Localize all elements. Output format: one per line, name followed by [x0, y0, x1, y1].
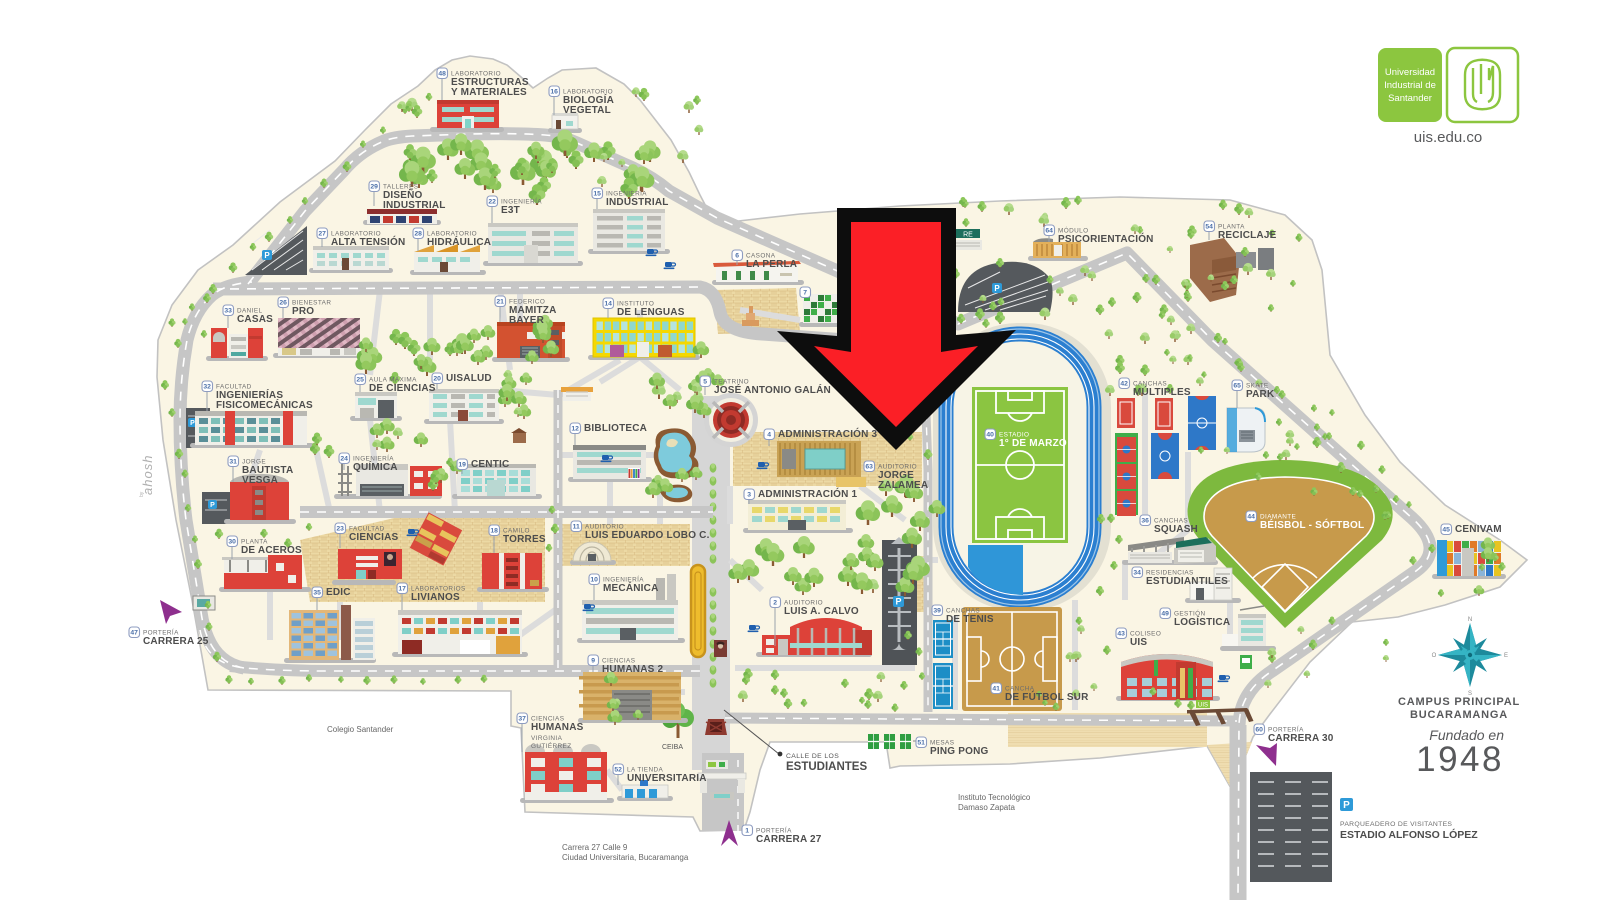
- svg-text:63: 63: [865, 464, 873, 471]
- svg-text:ZALAMEA: ZALAMEA: [878, 480, 928, 491]
- svg-text:BUCARAMANGA: BUCARAMANGA: [1410, 709, 1508, 721]
- svg-text:RE: RE: [963, 232, 973, 239]
- svg-text:LOGÍSTICA: LOGÍSTICA: [1174, 615, 1230, 628]
- svg-text:PSICORIENTACIÓN: PSICORIENTACIÓN: [1058, 232, 1154, 245]
- svg-text:CARRERA 25: CARRERA 25: [143, 636, 209, 647]
- svg-text:40: 40: [986, 432, 994, 439]
- svg-text:45: 45: [1442, 527, 1450, 534]
- svg-text:INDUSTRIAL: INDUSTRIAL: [606, 197, 669, 208]
- svg-text:54: 54: [1205, 224, 1213, 231]
- svg-text:E: E: [1504, 653, 1508, 659]
- svg-text:DE FÚTBOL SUR: DE FÚTBOL SUR: [1005, 690, 1089, 703]
- svg-text:VIRGINIA: VIRGINIA: [531, 735, 563, 742]
- svg-text:CARRERA 30: CARRERA 30: [1268, 733, 1334, 744]
- svg-text:32: 32: [203, 384, 211, 391]
- svg-text:Universidad: Universidad: [1385, 67, 1435, 78]
- svg-text:44: 44: [1247, 514, 1255, 521]
- svg-text:PARQUEADERO DE VISITANTES: PARQUEADERO DE VISITANTES: [1340, 821, 1452, 828]
- svg-text:10: 10: [590, 577, 598, 584]
- svg-text:Santander: Santander: [1388, 93, 1432, 104]
- svg-text:UISALUD: UISALUD: [446, 373, 492, 384]
- svg-text:25: 25: [356, 377, 364, 384]
- svg-text:ahosh: ahosh: [140, 455, 155, 495]
- svg-text:2: 2: [773, 600, 777, 607]
- svg-text:64: 64: [1045, 228, 1053, 235]
- svg-text:CARRERA 27: CARRERA 27: [756, 834, 822, 845]
- svg-text:16: 16: [550, 89, 558, 96]
- svg-text:E3T: E3T: [501, 205, 520, 216]
- svg-text:DE LENGUAS: DE LENGUAS: [617, 307, 685, 318]
- svg-text:CENTIC: CENTIC: [471, 459, 509, 470]
- svg-text:CALLE DE LOS: CALLE DE LOS: [786, 753, 839, 760]
- svg-text:P: P: [190, 420, 195, 427]
- svg-text:36: 36: [1141, 518, 1149, 525]
- svg-text:Carrera 27 Calle 9: Carrera 27 Calle 9: [562, 843, 628, 852]
- svg-text:BÉISBOL - SÓFTBOL: BÉISBOL - SÓFTBOL: [1260, 518, 1364, 531]
- svg-text:TORRES: TORRES: [503, 534, 546, 545]
- svg-text:9: 9: [591, 658, 595, 665]
- svg-text:N: N: [1468, 617, 1472, 623]
- svg-text:DE TENIS: DE TENIS: [946, 614, 994, 625]
- svg-text:Colegio Santander: Colegio Santander: [327, 725, 394, 734]
- svg-text:LA PERLA: LA PERLA: [746, 259, 797, 270]
- svg-text:P: P: [264, 251, 270, 260]
- svg-text:EDIC: EDIC: [326, 587, 351, 598]
- svg-text:27: 27: [318, 231, 326, 238]
- svg-text:P: P: [895, 597, 901, 607]
- svg-text:O: O: [1432, 653, 1437, 659]
- svg-text:RECICLAJE: RECICLAJE: [1218, 230, 1277, 241]
- svg-text:20: 20: [433, 376, 441, 383]
- svg-text:Damaso Zapata: Damaso Zapata: [958, 803, 1015, 812]
- svg-text:UIS: UIS: [1198, 703, 1208, 709]
- svg-text:P: P: [1343, 800, 1350, 811]
- svg-text:uis.edu.co: uis.edu.co: [1414, 129, 1482, 146]
- svg-text:17: 17: [398, 586, 406, 593]
- svg-text:ADMINISTRACIÓN 1: ADMINISTRACIÓN 1: [758, 487, 858, 500]
- svg-text:Ciudad Universitaria, Bucarama: Ciudad Universitaria, Bucaramanga: [562, 853, 689, 862]
- svg-text:ESTUDIANTILES: ESTUDIANTILES: [1146, 576, 1228, 587]
- svg-text:CEIBA: CEIBA: [662, 744, 683, 751]
- svg-text:28: 28: [414, 231, 422, 238]
- svg-text:by: by: [139, 491, 145, 497]
- svg-text:12: 12: [571, 426, 579, 433]
- svg-text:Instituto Tecnológico: Instituto Tecnológico: [958, 793, 1031, 802]
- svg-text:DE CIENCIAS: DE CIENCIAS: [369, 383, 436, 394]
- svg-text:1° DE MARZO: 1° DE MARZO: [999, 438, 1067, 449]
- svg-text:MÚLTIPLES: MÚLTIPLES: [1133, 385, 1191, 398]
- svg-text:MECÁNICA: MECÁNICA: [603, 581, 659, 594]
- svg-text:ADMINISTRACIÓN 3: ADMINISTRACIÓN 3: [778, 427, 878, 440]
- svg-text:14: 14: [604, 301, 612, 308]
- svg-text:4: 4: [767, 432, 771, 439]
- svg-text:CIENCIAS: CIENCIAS: [349, 532, 399, 543]
- svg-text:65: 65: [1233, 383, 1241, 390]
- svg-text:UNIVERSITARIA: UNIVERSITARIA: [627, 773, 707, 784]
- svg-text:1: 1: [745, 828, 749, 835]
- svg-text:11: 11: [573, 524, 580, 531]
- svg-text:5: 5: [703, 379, 707, 386]
- svg-text:CAMPUS PRINCIPAL: CAMPUS PRINCIPAL: [1398, 696, 1520, 708]
- svg-text:DISEÑO: DISEÑO: [383, 188, 423, 201]
- svg-text:HIDRÁULICA: HIDRÁULICA: [427, 235, 491, 248]
- svg-text:39: 39: [933, 608, 941, 615]
- svg-text:Industrial de: Industrial de: [1384, 80, 1436, 91]
- svg-text:FISICOMECÁNICAS: FISICOMECÁNICAS: [216, 398, 313, 411]
- svg-text:41: 41: [992, 686, 1000, 693]
- svg-text:INDUSTRIAL: INDUSTRIAL: [383, 200, 446, 211]
- svg-text:P: P: [210, 502, 215, 509]
- svg-text:60: 60: [1255, 727, 1263, 734]
- svg-text:GUTIÉRREZ: GUTIÉRREZ: [531, 741, 572, 750]
- svg-text:PING PONG: PING PONG: [930, 746, 988, 757]
- svg-text:34: 34: [1133, 570, 1141, 577]
- svg-text:INGENIERÍAS: INGENIERÍAS: [216, 388, 283, 401]
- svg-text:29: 29: [370, 184, 378, 191]
- svg-text:UIS: UIS: [1130, 637, 1147, 648]
- svg-text:JOSÉ ANTONIO GALÁN: JOSÉ ANTONIO GALÁN: [714, 383, 831, 396]
- svg-text:33: 33: [224, 308, 232, 315]
- svg-text:42: 42: [1120, 381, 1128, 388]
- svg-text:BAYER: BAYER: [509, 315, 545, 326]
- svg-text:3: 3: [747, 492, 751, 499]
- svg-text:24: 24: [340, 456, 348, 463]
- svg-text:Y MATERIALES: Y MATERIALES: [451, 87, 527, 98]
- svg-text:48: 48: [438, 71, 446, 78]
- svg-text:52: 52: [614, 767, 622, 774]
- svg-text:PARK: PARK: [1246, 389, 1275, 400]
- svg-text:7: 7: [803, 290, 807, 297]
- svg-text:43: 43: [1117, 631, 1125, 638]
- svg-text:37: 37: [518, 716, 526, 723]
- svg-text:LIVIANOS: LIVIANOS: [411, 592, 460, 603]
- svg-text:VESGA: VESGA: [242, 475, 278, 486]
- svg-text:35: 35: [313, 590, 321, 597]
- svg-text:LUIS EDUARDO LOBO C.: LUIS EDUARDO LOBO C.: [585, 530, 710, 541]
- svg-text:18: 18: [490, 528, 498, 535]
- svg-text:26: 26: [279, 300, 287, 307]
- svg-text:ESTADIO ALFONSO LÓPEZ: ESTADIO ALFONSO LÓPEZ: [1340, 828, 1478, 841]
- svg-text:PRO: PRO: [292, 306, 314, 317]
- svg-text:30: 30: [228, 539, 236, 546]
- svg-text:BIBLIOTECA: BIBLIOTECA: [584, 423, 647, 434]
- svg-text:SQUASH: SQUASH: [1154, 524, 1198, 535]
- svg-text:19: 19: [458, 462, 466, 469]
- svg-text:LUIS A. CALVO: LUIS A. CALVO: [784, 606, 859, 617]
- svg-text:1948: 1948: [1416, 740, 1504, 779]
- svg-text:6: 6: [735, 253, 739, 260]
- svg-text:47: 47: [130, 630, 138, 637]
- svg-text:ALTA TENSIÓN: ALTA TENSIÓN: [331, 235, 405, 248]
- svg-text:21: 21: [496, 299, 504, 306]
- svg-text:CENIVAM: CENIVAM: [1455, 524, 1502, 535]
- svg-text:22: 22: [488, 199, 496, 206]
- svg-text:49: 49: [1161, 611, 1169, 618]
- svg-text:DE ACEROS: DE ACEROS: [241, 545, 302, 556]
- svg-text:31: 31: [229, 459, 237, 466]
- svg-text:QUÍMICA: QUÍMICA: [353, 460, 398, 473]
- svg-text:HUMANAS 2: HUMANAS 2: [602, 664, 663, 675]
- svg-text:P: P: [994, 284, 1000, 293]
- svg-text:CASAS: CASAS: [237, 314, 273, 325]
- svg-text:HUMANAS: HUMANAS: [531, 722, 584, 733]
- svg-text:15: 15: [593, 191, 601, 198]
- svg-text:BIOLOGÍA: BIOLOGÍA: [563, 93, 614, 106]
- svg-text:ESTUDIANTES: ESTUDIANTES: [786, 761, 867, 773]
- svg-text:51: 51: [917, 740, 925, 747]
- svg-text:23: 23: [336, 526, 344, 533]
- svg-text:VEGETAL: VEGETAL: [563, 105, 611, 116]
